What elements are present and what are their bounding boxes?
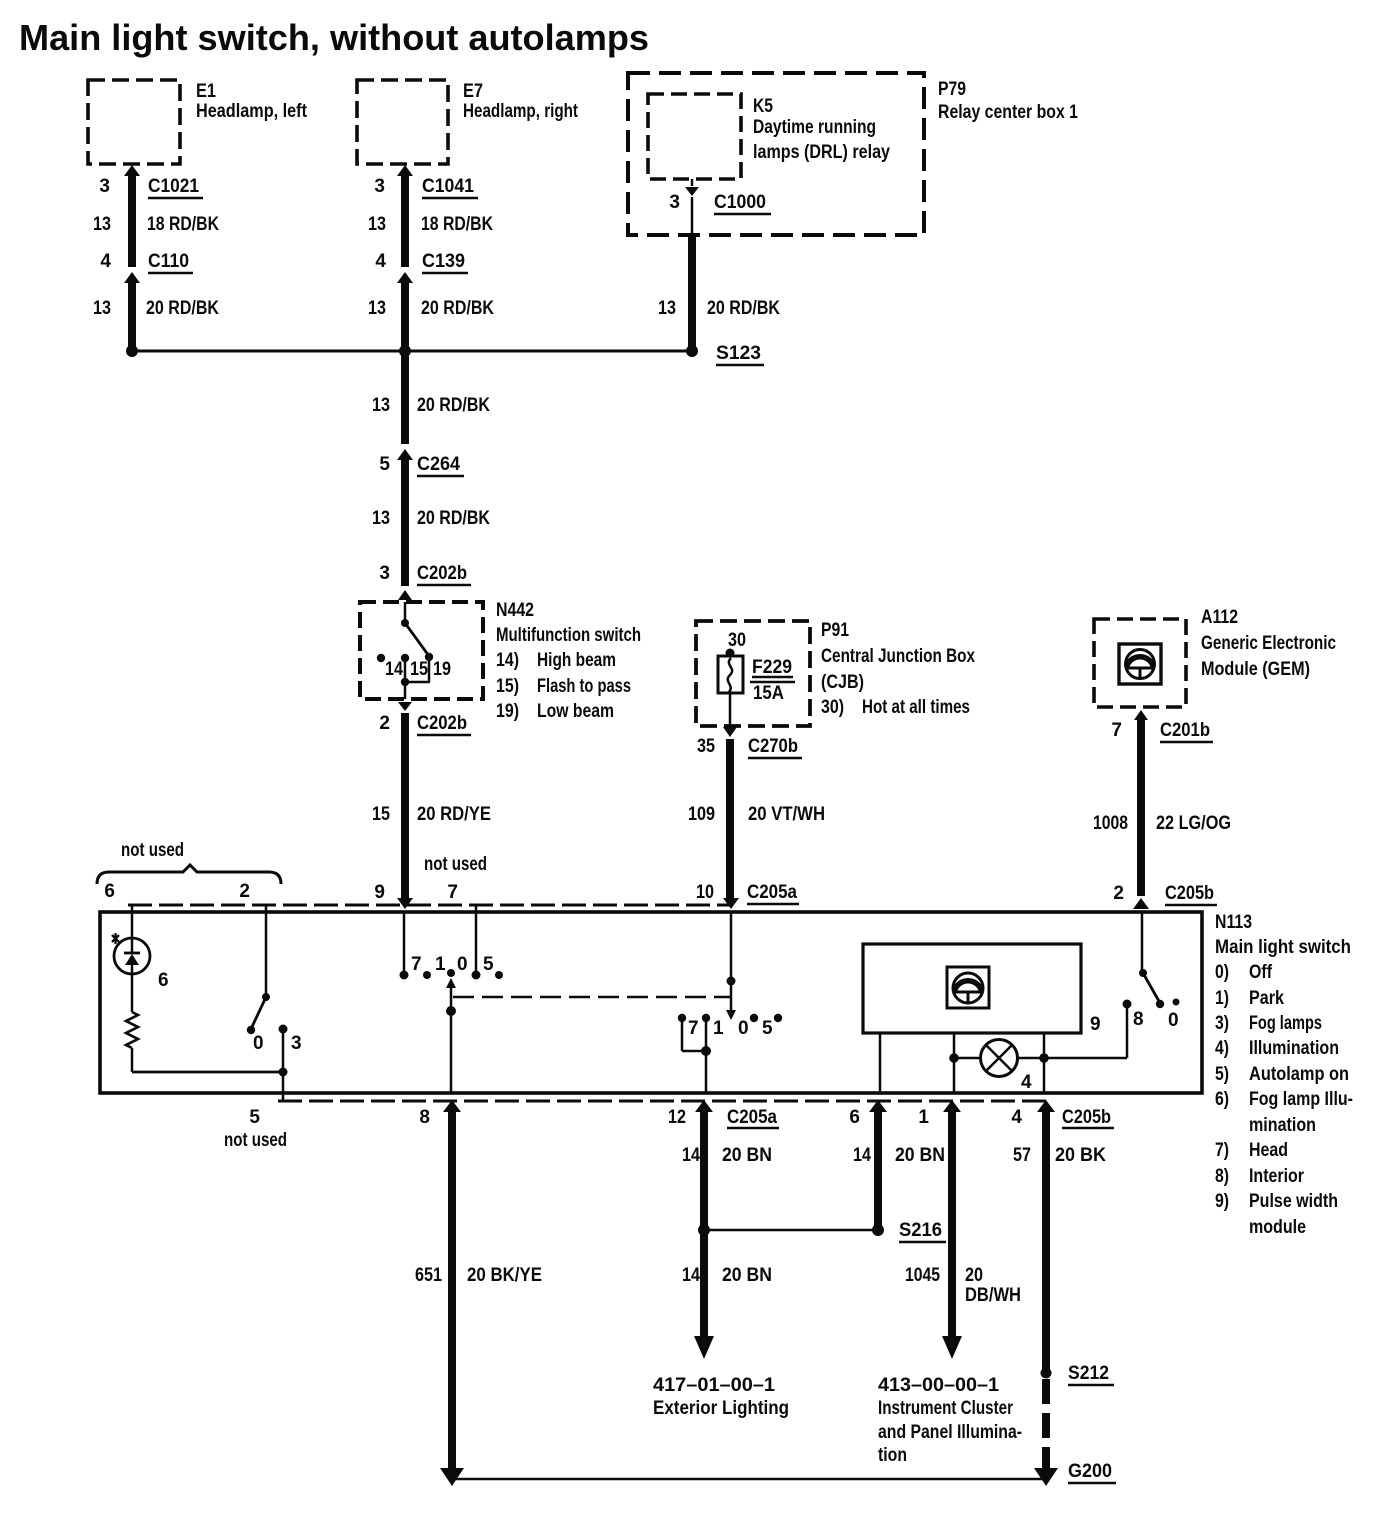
svg-text:Head: Head [1249,1140,1288,1161]
svg-text:E1: E1 [196,81,216,102]
svg-text:Daytime running: Daytime running [753,117,876,138]
svg-text:DB/WH: DB/WH [965,1285,1021,1306]
svg-text:20 BN: 20 BN [722,1265,772,1286]
svg-text:20 RD/BK: 20 RD/BK [707,298,780,319]
svg-text:0: 0 [253,1033,264,1054]
svg-text:Module (GEM): Module (GEM) [1201,659,1310,680]
svg-text:module: module [1249,1217,1306,1238]
svg-text:3: 3 [291,1033,302,1054]
svg-text:7: 7 [411,954,422,975]
svg-text:A112: A112 [1201,607,1238,628]
svg-text:Off: Off [1249,962,1273,983]
svg-text:Fog lamp Illu-: Fog lamp Illu- [1249,1089,1353,1110]
svg-text:30): 30) [821,697,844,718]
svg-text:Generic Electronic: Generic Electronic [1201,633,1336,654]
svg-text:3: 3 [379,563,390,584]
svg-text:15: 15 [372,804,390,825]
svg-text:Park: Park [1249,988,1284,1009]
svg-text:C205b: C205b [1062,1107,1111,1128]
svg-text:20 RD/BK: 20 RD/BK [146,298,219,319]
svg-text:4): 4) [1215,1038,1229,1059]
svg-text:413–00–00–1: 413–00–00–1 [878,1375,999,1396]
svg-text:13: 13 [368,298,386,319]
svg-text:14: 14 [682,1265,700,1286]
svg-text:7: 7 [688,1018,699,1039]
svg-text:15: 15 [410,659,428,680]
svg-text:20 BN: 20 BN [895,1145,945,1166]
svg-text:C264: C264 [417,454,460,475]
svg-text:8: 8 [419,1107,430,1128]
svg-text:P91: P91 [821,620,849,641]
svg-text:Flash to pass: Flash to pass [537,676,631,697]
svg-text:not used: not used [121,840,184,861]
svg-text:0: 0 [738,1018,749,1039]
svg-text:1: 1 [713,1018,724,1039]
svg-text:mination: mination [1249,1115,1316,1136]
svg-text:20 VT/WH: 20 VT/WH [748,804,825,825]
svg-text:Main light switch, without aut: Main light switch, without autolamps [19,17,649,58]
svg-text:20 BK: 20 BK [1055,1145,1106,1166]
svg-text:20 RD/BK: 20 RD/BK [417,508,490,529]
svg-text:10: 10 [696,882,714,903]
svg-text:1008: 1008 [1093,813,1128,834]
svg-text:C1000: C1000 [714,192,766,213]
svg-text:5: 5 [249,1107,260,1128]
svg-text:6: 6 [158,970,169,991]
svg-text:6): 6) [1215,1089,1229,1110]
svg-text:Relay center box 1: Relay center box 1 [938,102,1078,123]
svg-text:(CJB): (CJB) [821,672,864,693]
svg-text:6: 6 [849,1107,860,1128]
svg-text:K5: K5 [753,96,773,117]
svg-text:35: 35 [697,736,715,757]
svg-text:not used: not used [224,1130,287,1151]
svg-text:13: 13 [93,298,111,319]
svg-text:1): 1) [1215,988,1229,1009]
svg-text:C201b: C201b [1160,720,1210,741]
svg-text:13: 13 [368,214,386,235]
svg-text:14: 14 [682,1145,700,1166]
svg-text:C202b: C202b [417,563,467,584]
svg-text:0: 0 [457,954,468,975]
svg-text:Illumination: Illumination [1249,1038,1339,1059]
svg-text:13: 13 [372,508,390,529]
svg-text:3: 3 [374,176,385,197]
svg-text:19: 19 [433,659,451,680]
svg-text:P79: P79 [938,79,966,100]
svg-text:Instrument Cluster: Instrument Cluster [878,1398,1013,1419]
svg-text:6: 6 [104,881,115,902]
svg-text:13: 13 [372,395,390,416]
svg-text:12: 12 [668,1107,686,1128]
svg-text:8: 8 [1133,1009,1144,1030]
svg-text:S216: S216 [899,1220,942,1241]
svg-text:20: 20 [965,1265,983,1286]
svg-text:651: 651 [415,1265,442,1286]
svg-text:3: 3 [669,192,680,213]
svg-text:tion: tion [878,1445,907,1466]
svg-text:1045: 1045 [905,1265,940,1286]
svg-text:14: 14 [853,1145,871,1166]
svg-text:4: 4 [100,251,111,272]
svg-text:18 RD/BK: 18 RD/BK [147,214,219,235]
svg-text:Central Junction Box: Central Junction Box [821,646,975,667]
svg-text:C1021: C1021 [148,176,199,197]
svg-text:14): 14) [496,650,519,671]
svg-text:Pulse width: Pulse width [1249,1191,1338,1212]
svg-text:7: 7 [447,882,458,903]
svg-text:15A: 15A [753,683,784,704]
svg-text:2: 2 [379,713,390,734]
svg-text:18 RD/BK: 18 RD/BK [421,214,493,235]
svg-text:5: 5 [762,1018,773,1039]
svg-text:Multifunction switch: Multifunction switch [496,625,641,646]
svg-text:S212: S212 [1068,1363,1109,1384]
svg-text:30: 30 [728,630,746,651]
svg-text:Exterior Lighting: Exterior Lighting [653,1398,789,1419]
svg-text:Interior: Interior [1249,1166,1305,1187]
svg-text:20 RD/BK: 20 RD/BK [417,395,490,416]
svg-text:5: 5 [483,954,494,975]
svg-text:C205a: C205a [727,1107,777,1128]
svg-text:C270b: C270b [748,736,798,757]
svg-text:0: 0 [1168,1010,1179,1031]
svg-text:Headlamp, right: Headlamp, right [463,101,579,122]
svg-text:20 RD/YE: 20 RD/YE [417,804,491,825]
svg-text:9: 9 [374,882,385,903]
svg-text:C1041: C1041 [422,176,474,197]
svg-text:13: 13 [658,298,676,319]
svg-text:109: 109 [688,804,715,825]
svg-text:22 LG/OG: 22 LG/OG [1156,813,1231,834]
svg-text:1: 1 [918,1107,929,1128]
svg-text:and Panel Illumina-: and Panel Illumina- [878,1422,1022,1443]
svg-text:F229: F229 [752,657,792,678]
svg-text:3: 3 [99,176,110,197]
svg-text:C205a: C205a [747,882,797,903]
svg-text:417–01–00–1: 417–01–00–1 [653,1375,775,1396]
svg-text:N442: N442 [496,600,534,621]
svg-text:S123: S123 [716,343,761,364]
svg-text:9: 9 [1090,1014,1101,1035]
svg-text:20 RD/BK: 20 RD/BK [421,298,494,319]
svg-text:High beam: High beam [537,650,616,671]
svg-text:E7: E7 [463,81,483,102]
svg-text:8): 8) [1215,1166,1229,1187]
svg-text:2: 2 [239,881,250,902]
svg-text:15): 15) [496,676,519,697]
svg-text:19): 19) [496,701,519,722]
svg-text:14: 14 [385,659,403,680]
svg-text:5): 5) [1215,1064,1229,1085]
svg-text:9): 9) [1215,1191,1229,1212]
svg-text:5: 5 [379,454,390,475]
svg-text:N113: N113 [1215,912,1252,933]
svg-text:1: 1 [435,954,446,975]
svg-text:7: 7 [1111,720,1122,741]
svg-text:Main light switch: Main light switch [1215,937,1351,958]
svg-text:not used: not used [424,854,487,875]
svg-text:3): 3) [1215,1013,1229,1034]
svg-text:57: 57 [1013,1145,1031,1166]
svg-text:C110: C110 [148,251,189,272]
svg-text:20 BN: 20 BN [722,1145,772,1166]
svg-text:C205b: C205b [1165,883,1214,904]
svg-text:Headlamp, left: Headlamp, left [196,101,308,122]
svg-text:0): 0) [1215,962,1229,983]
svg-text:4: 4 [375,251,386,272]
svg-text:7): 7) [1215,1140,1229,1161]
svg-text:20 BK/YE: 20 BK/YE [467,1265,542,1286]
svg-text:13: 13 [93,214,111,235]
svg-text:Hot at all times: Hot at all times [862,697,970,718]
svg-text:2: 2 [1113,883,1124,904]
svg-text:lamps (DRL) relay: lamps (DRL) relay [753,142,890,163]
svg-text:4: 4 [1011,1107,1022,1128]
svg-text:C202b: C202b [417,713,467,734]
svg-text:C139: C139 [422,251,465,272]
svg-text:Autolamp on: Autolamp on [1249,1064,1349,1085]
svg-text:G200: G200 [1068,1461,1112,1482]
svg-text:Fog lamps: Fog lamps [1249,1013,1322,1034]
svg-text:4: 4 [1021,1072,1032,1093]
svg-text:Low beam: Low beam [537,701,614,722]
